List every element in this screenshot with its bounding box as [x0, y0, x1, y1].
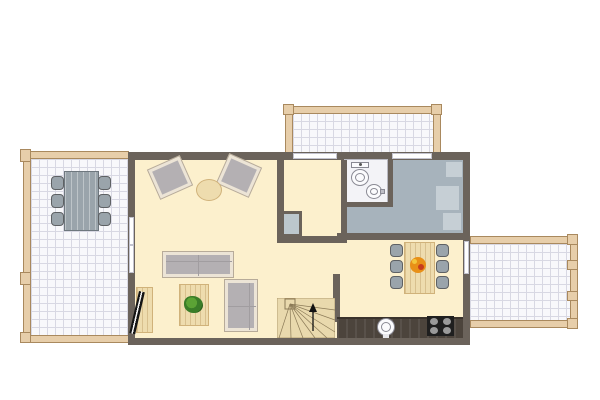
east-balcony-rail-right	[570, 236, 578, 328]
sofa-backrest-line	[166, 261, 232, 262]
terrace-post	[20, 332, 31, 343]
armchair-seat	[152, 160, 188, 194]
east-balcony-rail-top	[470, 236, 578, 244]
toilet-bowl-inner	[355, 173, 365, 182]
window-west-divider	[129, 244, 134, 246]
terrace-rail-left	[23, 151, 31, 343]
fruit-bowl	[410, 257, 426, 273]
wall-bedroom-south	[337, 233, 463, 240]
loveseat-cushion-line	[228, 306, 256, 307]
winder-stairs	[277, 298, 335, 338]
terrace-post	[20, 272, 31, 285]
burner	[443, 318, 451, 325]
wall-bathroom-south	[344, 202, 393, 207]
terrace-post	[20, 149, 31, 162]
east-balcony-rail-bottom	[470, 320, 578, 328]
burner	[430, 327, 438, 334]
terrace-chair	[51, 176, 64, 190]
window-north-1	[293, 153, 337, 159]
washbasin-inner	[370, 188, 378, 195]
potted-plant	[184, 296, 203, 313]
bedroom-cabinet	[436, 186, 459, 210]
east-balcony-post	[567, 291, 578, 301]
dining-chair	[436, 244, 449, 257]
north-balcony-rail-top	[285, 106, 441, 114]
hall-closet	[281, 211, 302, 237]
dining-chair	[390, 260, 403, 273]
armchair-seat	[221, 158, 257, 192]
dining-chair	[436, 276, 449, 289]
sofa	[162, 251, 234, 278]
stove	[427, 316, 454, 336]
washbasin-faucet	[380, 189, 385, 194]
burner	[443, 327, 451, 334]
dining-chair	[390, 244, 403, 257]
east-balcony-post	[567, 234, 578, 245]
east-balcony-post	[567, 260, 578, 270]
north-balcony-floor	[293, 113, 433, 153]
door-east-balcony	[464, 241, 469, 274]
north-balcony-post	[431, 104, 442, 115]
east-balcony-floor	[470, 244, 570, 321]
terrace-chair	[98, 194, 111, 208]
fruit-yellow	[412, 259, 417, 264]
north-balcony-post	[283, 104, 294, 115]
terrace-rail-bottom	[23, 335, 129, 343]
kitchen-sink-inner	[381, 322, 391, 332]
terrace-dining-table	[64, 171, 99, 231]
wall-hall-east	[341, 160, 347, 240]
fruit-red	[418, 264, 424, 270]
terrace-rail-top	[23, 151, 129, 159]
loveseat-armrest-line	[249, 283, 250, 330]
terrace-chair	[51, 212, 64, 226]
toilet-button	[359, 163, 362, 166]
wall-bathroom-east	[388, 159, 393, 207]
terrace-chair	[51, 194, 64, 208]
east-balcony-post	[567, 318, 578, 329]
kitchen-sink-base	[383, 334, 389, 338]
burner	[430, 318, 438, 325]
terrace-chair	[98, 212, 111, 226]
dining-chair	[390, 276, 403, 289]
terrace-chair	[98, 176, 111, 190]
sofa-cushion-line	[198, 255, 199, 276]
loveseat	[224, 279, 258, 332]
floor-plan	[0, 0, 600, 400]
round-side-table	[196, 179, 222, 201]
bedroom-cabinet	[443, 213, 461, 230]
bedroom-cabinet	[446, 162, 462, 177]
window-north-2	[392, 153, 432, 159]
dining-chair	[436, 260, 449, 273]
